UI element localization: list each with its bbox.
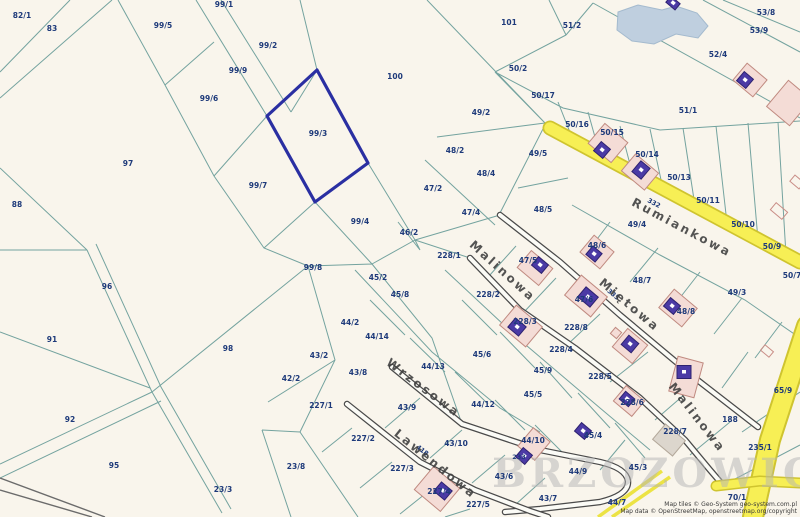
parcel-label-95: 95	[109, 461, 119, 470]
parcel-label-48-4: 48/4	[477, 169, 495, 178]
parcel-label-228-4: 228/4	[549, 345, 573, 354]
parcel-label-51-2: 51/2	[563, 21, 581, 30]
parcel-label-23-3: 23/3	[214, 485, 232, 494]
parcel-label-50-9: 50/9	[763, 242, 781, 251]
parcel-label-65-9: 65/9	[774, 386, 792, 395]
parcel-label-48-2: 48/2	[446, 146, 464, 155]
parcel-label-50-11: 50/11	[696, 196, 720, 205]
watermark: BRZOZOWICZ	[492, 450, 800, 497]
parcel-label-43-2: 43/2	[310, 351, 328, 360]
parcel-label-44-12: 44/12	[471, 400, 495, 409]
parcel-label-45-2: 45/2	[369, 273, 387, 282]
parcel-label-188: 188	[722, 415, 738, 424]
parcel-label-101: 101	[501, 18, 517, 27]
parcel-label-49-5: 49/5	[529, 149, 547, 158]
parcel-label-227-3: 227/3	[390, 464, 414, 473]
parcel-label-82-1: 82/1	[13, 11, 31, 20]
parcel-label-83: 83	[47, 24, 57, 33]
parcel-label-44-10: 44/10	[521, 436, 545, 445]
parcel-label-53-8: 53/8	[757, 8, 775, 17]
parcel-label-47-6: 47/6	[575, 295, 593, 304]
parcel-label-50-13: 50/13	[667, 173, 691, 182]
parcel-label-48-8: 48/8	[677, 307, 695, 316]
parcel-label-48-6: 48/6	[588, 241, 606, 250]
parcel-label-23-8: 23/8	[287, 462, 305, 471]
building-icon	[677, 366, 691, 379]
parcel-label-99-5: 99/5	[154, 21, 172, 30]
parcel-label-47-4: 47/4	[462, 208, 480, 217]
parcel-label-92: 92	[65, 415, 75, 424]
parcel-label-99-7: 99/7	[249, 181, 267, 190]
parcel-label-42-2: 42/2	[282, 374, 300, 383]
parcel-label-228-6: 228/6	[620, 398, 644, 407]
parcel-label-51-1: 51/1	[679, 106, 697, 115]
parcel-label-99-6: 99/6	[200, 94, 218, 103]
parcel-label-50-10: 50/10	[731, 220, 755, 229]
parcel-label-45-6: 45/6	[473, 350, 491, 359]
parcel-label-96: 96	[102, 282, 112, 291]
parcel-label-235-1: 235/1	[748, 443, 772, 452]
parcel-label-47-2: 47/2	[424, 184, 442, 193]
parcel-label-228-1: 228/1	[437, 251, 461, 260]
parcel-label-47-5: 47/5	[519, 256, 537, 265]
parcel-label-50-16: 50/16	[565, 120, 589, 129]
parcel-label-227-2: 227/2	[351, 434, 375, 443]
parcel-label-50-7: 50/7	[783, 271, 800, 280]
parcel-label-228-7: 228/7	[663, 427, 687, 436]
parcel-label-228-5: 228/5	[588, 372, 612, 381]
parcel-label-88: 88	[12, 200, 22, 209]
parcel-label-45-4: 45/4	[584, 431, 602, 440]
map-viewport[interactable]: BRZOZOWICZ 82/18399/599/199/299/999/699/…	[0, 0, 800, 517]
parcel-label-45-9: 45/9	[534, 366, 552, 375]
parcel-label-43-7: 43/7	[539, 494, 557, 503]
parcel-label-45-8: 45/8	[391, 290, 409, 299]
parcel-label-91: 91	[47, 335, 57, 344]
parcel-label-43-6: 43/6	[495, 472, 513, 481]
parcel-label-99-3: 99/3	[309, 129, 327, 138]
parcel-label-52-4: 52/4	[709, 50, 727, 59]
parcel-label-100: 100	[387, 72, 403, 81]
attribution-line-2: Map data © OpenStreetMap, openstreetmap.…	[620, 508, 797, 515]
parcel-label-44-14: 44/14	[365, 332, 389, 341]
parcel-label-99-2: 99/2	[259, 41, 277, 50]
parcel-label-50-2: 50/2	[509, 64, 527, 73]
parcel-label-49-3: 49/3	[728, 288, 746, 297]
parcel-label-50-15: 50/15	[600, 128, 624, 137]
parcel-label-228-8: 228/8	[564, 323, 588, 332]
parcel-label-44-2: 44/2	[341, 318, 359, 327]
parcel-label-99-8: 99/8	[304, 263, 322, 272]
parcel-label-43-10: 43/10	[444, 439, 468, 448]
parcel-label-228-2: 228/2	[476, 290, 500, 299]
parcel-label-227-5: 227/5	[466, 500, 490, 509]
parcel-label-48-5: 48/5	[534, 205, 552, 214]
parcel-label-97: 97	[123, 159, 133, 168]
parcel-label-49-4: 49/4	[628, 220, 646, 229]
parcel-label-99-4: 99/4	[351, 217, 369, 226]
parcel-label-44-9: 44/9	[569, 467, 587, 476]
parcel-label-43-9: 43/9	[398, 403, 416, 412]
parcel-label-49-2: 49/2	[472, 108, 490, 117]
parcel-label-45-3: 45/3	[629, 463, 647, 472]
parcel-label-44-13: 44/13	[421, 362, 445, 371]
parcel-label-50-17: 50/17	[531, 91, 555, 100]
cadastral-map[interactable]: BRZOZOWICZ 82/18399/599/199/299/999/699/…	[0, 0, 800, 517]
parcel-label-48-7: 48/7	[633, 276, 651, 285]
parcel-label-53-9: 53/9	[750, 26, 768, 35]
parcel-label-44-7: 44/7	[608, 498, 626, 507]
parcel-label-45-5: 45/5	[524, 390, 542, 399]
parcel-label-228-3: 228/3	[513, 317, 537, 326]
parcel-label-50-14: 50/14	[635, 150, 659, 159]
parcel-label-99-1: 99/1	[215, 0, 233, 9]
parcel-label-98: 98	[223, 344, 233, 353]
parcel-label-46-2: 46/2	[400, 228, 418, 237]
parcel-label-227-4: 227/4	[427, 487, 451, 496]
road-ref-233: 233	[512, 453, 526, 461]
attribution-line-1: Map tiles © Geo-System geo-system.com.pl	[664, 501, 797, 508]
parcel-label-227-1: 227/1	[309, 401, 333, 410]
parcel-label-43-8: 43/8	[349, 368, 367, 377]
parcel-label-99-9: 99/9	[229, 66, 247, 75]
